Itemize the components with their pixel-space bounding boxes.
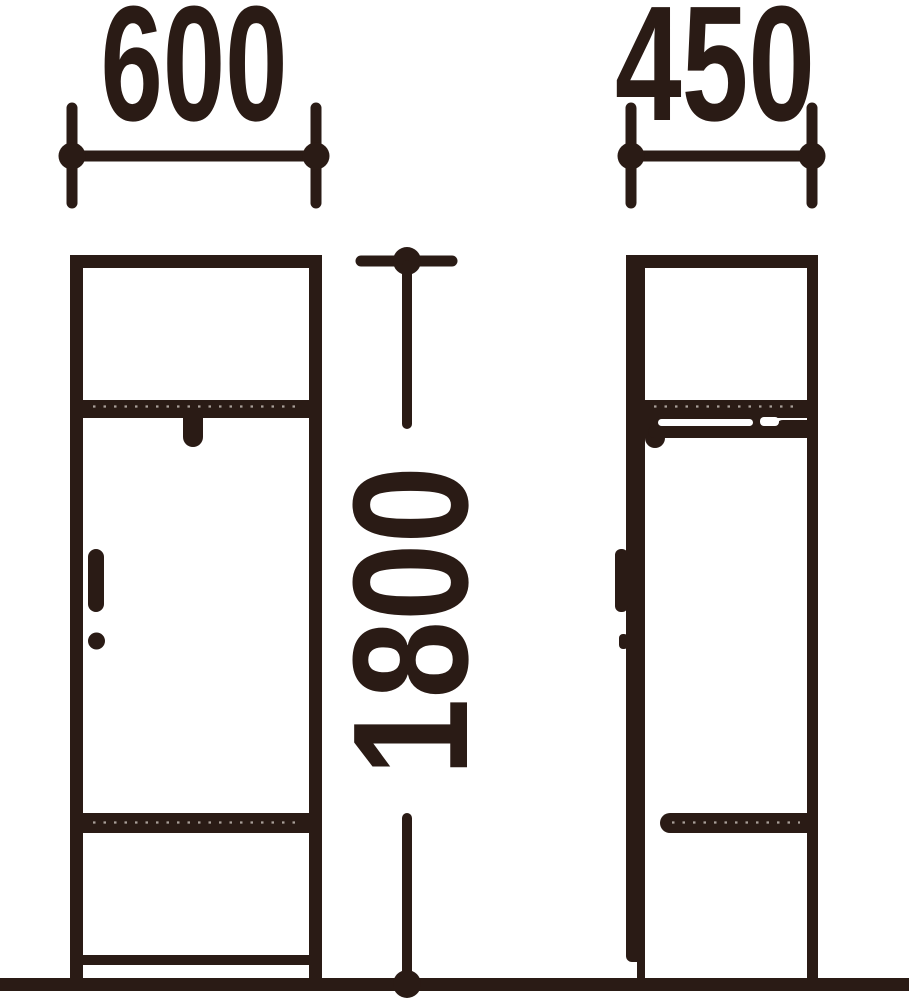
side-kick-recess-edge bbox=[637, 950, 645, 978]
front-width-label: 600 bbox=[101, 0, 288, 155]
front-shelf-band bbox=[83, 400, 309, 418]
side-handle-bump bbox=[615, 549, 628, 612]
front-left-side-panel bbox=[70, 255, 83, 978]
front-bottom-rail bbox=[83, 955, 309, 965]
dimension-front-width: 600 bbox=[59, 0, 330, 203]
side-back-panel bbox=[807, 255, 818, 978]
front-door-handle bbox=[88, 549, 104, 612]
side-hanger-bracket bbox=[645, 414, 807, 448]
side-view bbox=[615, 255, 818, 978]
front-coat-hook bbox=[183, 418, 203, 447]
side-depth-label: 450 bbox=[615, 0, 815, 155]
dimension-drawing: 600 450 1800 bbox=[0, 0, 909, 1000]
side-top-panel bbox=[626, 255, 818, 268]
dimension-side-depth: 450 bbox=[615, 0, 826, 203]
endpoint-dot-left bbox=[59, 143, 86, 170]
bracket-lower-bar bbox=[648, 426, 794, 438]
front-lock-keyhole bbox=[88, 633, 105, 650]
bracket-slot bbox=[658, 419, 753, 426]
front-top-panel bbox=[70, 255, 322, 268]
front-door-bottom-band bbox=[83, 813, 309, 833]
bracket-notch bbox=[760, 417, 779, 426]
dimension-height: 1800 bbox=[319, 247, 502, 998]
locker-dimension-diagram: 600 450 1800 bbox=[0, 0, 909, 1000]
side-bottom-shelf-bar bbox=[660, 813, 807, 833]
endpoint-dot-right bbox=[303, 143, 330, 170]
side-front-face-panel bbox=[626, 255, 645, 962]
front-view bbox=[70, 255, 322, 978]
bracket-right-block bbox=[775, 420, 807, 438]
endpoint-dot-bottom bbox=[393, 970, 421, 998]
side-lock-bump bbox=[619, 634, 628, 649]
floor-line bbox=[0, 978, 909, 991]
height-label: 1800 bbox=[319, 466, 502, 776]
